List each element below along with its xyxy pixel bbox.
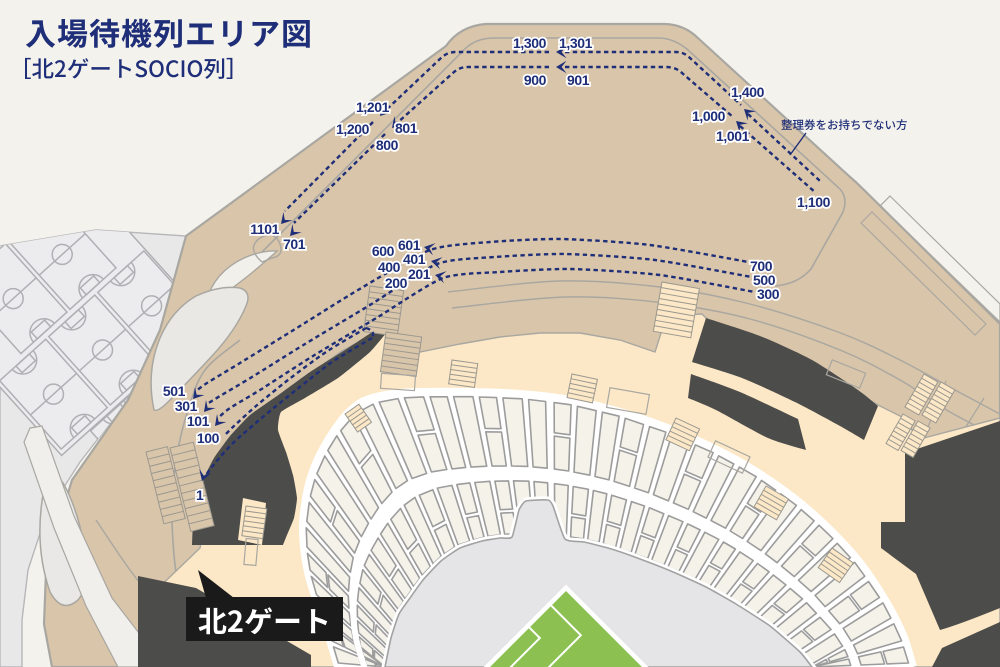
svg-text:900: 900 xyxy=(524,72,547,88)
svg-text:1,300: 1,300 xyxy=(513,35,547,51)
svg-text:1,301: 1,301 xyxy=(559,35,593,51)
svg-text:501: 501 xyxy=(163,383,186,399)
svg-text:600: 600 xyxy=(372,243,395,259)
svg-text:300: 300 xyxy=(757,286,780,302)
svg-text:200: 200 xyxy=(385,275,408,291)
svg-text:701: 701 xyxy=(283,236,306,252)
svg-text:301: 301 xyxy=(175,398,198,414)
svg-text:1: 1 xyxy=(196,487,204,503)
svg-text:101: 101 xyxy=(187,413,210,429)
svg-text:1,200: 1,200 xyxy=(336,121,370,137)
svg-text:1,100: 1,100 xyxy=(797,194,831,210)
svg-text:1,400: 1,400 xyxy=(731,84,765,100)
svg-text:201: 201 xyxy=(408,266,431,282)
svg-text:400: 400 xyxy=(378,259,401,275)
svg-text:1,001: 1,001 xyxy=(716,128,750,144)
svg-text:100: 100 xyxy=(197,430,220,446)
svg-text:1,000: 1,000 xyxy=(692,108,726,124)
svg-text:801: 801 xyxy=(395,120,418,136)
svg-text:1101: 1101 xyxy=(250,221,279,237)
svg-text:901: 901 xyxy=(567,72,590,88)
svg-text:1,201: 1,201 xyxy=(356,99,390,115)
svg-text:800: 800 xyxy=(376,137,399,153)
svg-text:401: 401 xyxy=(403,251,426,267)
